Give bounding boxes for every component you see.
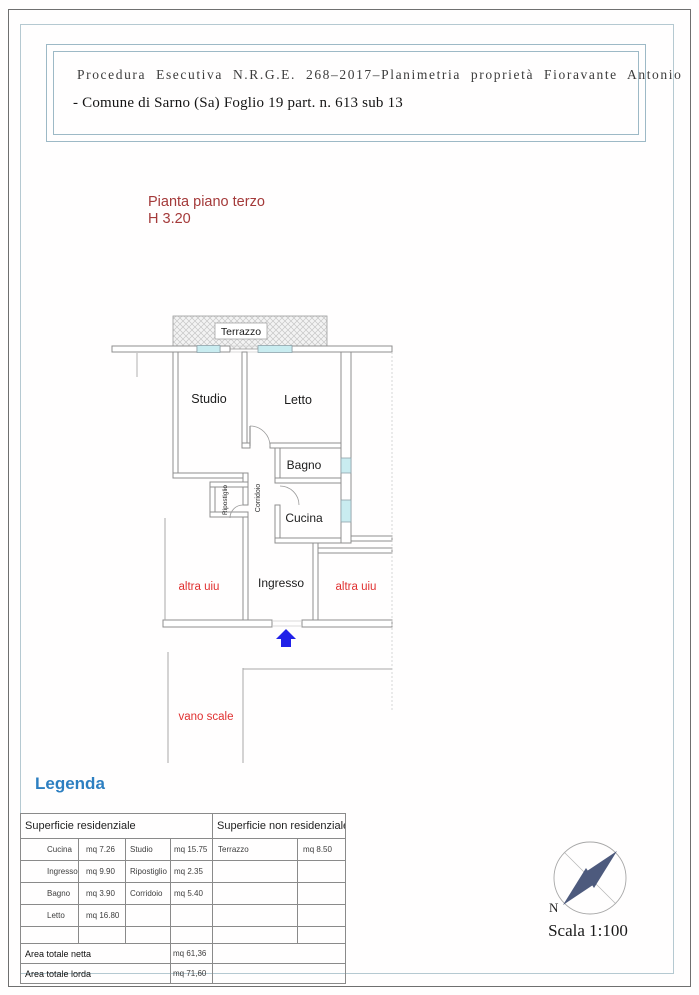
cell: mq 9.90	[79, 861, 126, 883]
stairwell-lines	[165, 518, 392, 763]
title-line-2: - Comune di Sarno (Sa) Foglio 19 part. n…	[73, 95, 633, 112]
total-net-empty	[213, 944, 346, 964]
cell	[171, 927, 213, 944]
floor-plan: Terrazzo	[100, 290, 400, 780]
door-swings	[230, 426, 299, 518]
cell: Ripostiglio	[126, 861, 171, 883]
cell	[298, 927, 346, 944]
table-row: Letto mq 16.80	[21, 905, 346, 927]
cell	[79, 927, 126, 944]
compass: N Scala 1:100	[530, 833, 650, 945]
cell: mq 8.50	[298, 839, 346, 861]
total-gross-label: Area totale lorda	[21, 964, 171, 984]
cell	[213, 927, 298, 944]
cell: Letto	[21, 905, 79, 927]
total-net-label: Area totale netta	[21, 944, 171, 964]
cell: Ingresso	[21, 861, 79, 883]
title-block-inner-border	[53, 51, 639, 135]
total-net-value: mq 61,36	[171, 944, 213, 964]
altra-uiu-right-label: altra uiu	[336, 581, 377, 593]
letto-label: Letto	[284, 393, 312, 407]
cell	[298, 905, 346, 927]
cell	[126, 905, 171, 927]
bagno-window	[341, 458, 351, 473]
table-row: Bagno mq 3.90 Corridoio mq 5.40	[21, 883, 346, 905]
header-residential: Superficie residenziale	[21, 814, 213, 839]
cell: Corridoio	[126, 883, 171, 905]
total-gross-empty	[213, 964, 346, 984]
total-net-row: Area totale netta mq 61,36	[21, 944, 346, 964]
cell: mq 7.26	[79, 839, 126, 861]
legend-heading: Legenda	[35, 774, 105, 794]
studio-window	[197, 346, 220, 353]
plan-heading-line2: H 3.20	[148, 211, 265, 228]
title-block: Procedura Esecutiva N.R.G.E. 268–2017–Pl…	[46, 44, 646, 142]
plan-heading-line1: Pianta piano terzo	[148, 194, 265, 211]
scale-label: Scala 1:100	[548, 921, 628, 940]
letto-window	[258, 346, 292, 353]
cell: Bagno	[21, 883, 79, 905]
studio-label: Studio	[191, 392, 226, 406]
altra-uiu-left-label: altra uiu	[179, 581, 220, 593]
vano-scale-label: vano scale	[179, 711, 234, 723]
header-non-residential: Superficie non residenziale	[213, 814, 346, 839]
terrazzo-label: Terrazzo	[221, 326, 261, 338]
cell	[213, 905, 298, 927]
cell: mq 3.90	[79, 883, 126, 905]
table-row: Cucina mq 7.26 Studio mq 15.75 Terrazzo …	[21, 839, 346, 861]
cell	[126, 927, 171, 944]
total-gross-value: mq 71,60	[171, 964, 213, 984]
cell: Studio	[126, 839, 171, 861]
cell: mq 15.75	[171, 839, 213, 861]
table-row: Ingresso mq 9.90 Ripostiglio mq 2.35	[21, 861, 346, 883]
title-line-1: Procedura Esecutiva N.R.G.E. 268–2017–Pl…	[77, 67, 637, 83]
cell: Terrazzo	[213, 839, 298, 861]
cell	[213, 861, 298, 883]
plan-heading: Pianta piano terzo H 3.20	[148, 194, 265, 228]
bagno-label: Bagno	[287, 458, 322, 472]
ingresso-label: Ingresso	[258, 576, 304, 590]
cell	[21, 927, 79, 944]
total-gross-row: Area totale lorda mq 71,60	[21, 964, 346, 984]
cell	[213, 883, 298, 905]
table-row-empty	[21, 927, 346, 944]
cell: mq 2.35	[171, 861, 213, 883]
ripostiglio-label: Ripostiglio	[222, 485, 229, 515]
legend-table: Superficie residenziale Superficie non r…	[20, 813, 346, 984]
cell: mq 5.40	[171, 883, 213, 905]
cell: Cucina	[21, 839, 79, 861]
cell	[298, 861, 346, 883]
legend-header-row: Superficie residenziale Superficie non r…	[21, 814, 346, 839]
corridoio-label: Corridoio	[255, 484, 262, 513]
cucina-window	[341, 500, 351, 522]
document-page: Procedura Esecutiva N.R.G.E. 268–2017–Pl…	[0, 0, 699, 995]
cucina-label: Cucina	[285, 511, 323, 525]
cell: mq 16.80	[79, 905, 126, 927]
entrance-arrow-icon	[276, 629, 296, 647]
cell	[171, 905, 213, 927]
north-label: N	[549, 900, 559, 915]
cell	[298, 883, 346, 905]
